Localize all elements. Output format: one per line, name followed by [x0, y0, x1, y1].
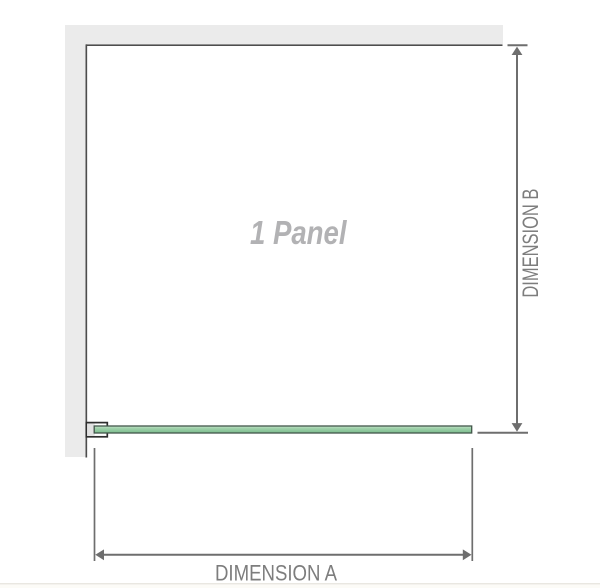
svg-text:DIMENSION B: DIMENSION B — [518, 189, 543, 298]
svg-text:DIMENSION A: DIMENSION A — [215, 561, 337, 586]
svg-text:1 Panel: 1 Panel — [250, 214, 347, 251]
